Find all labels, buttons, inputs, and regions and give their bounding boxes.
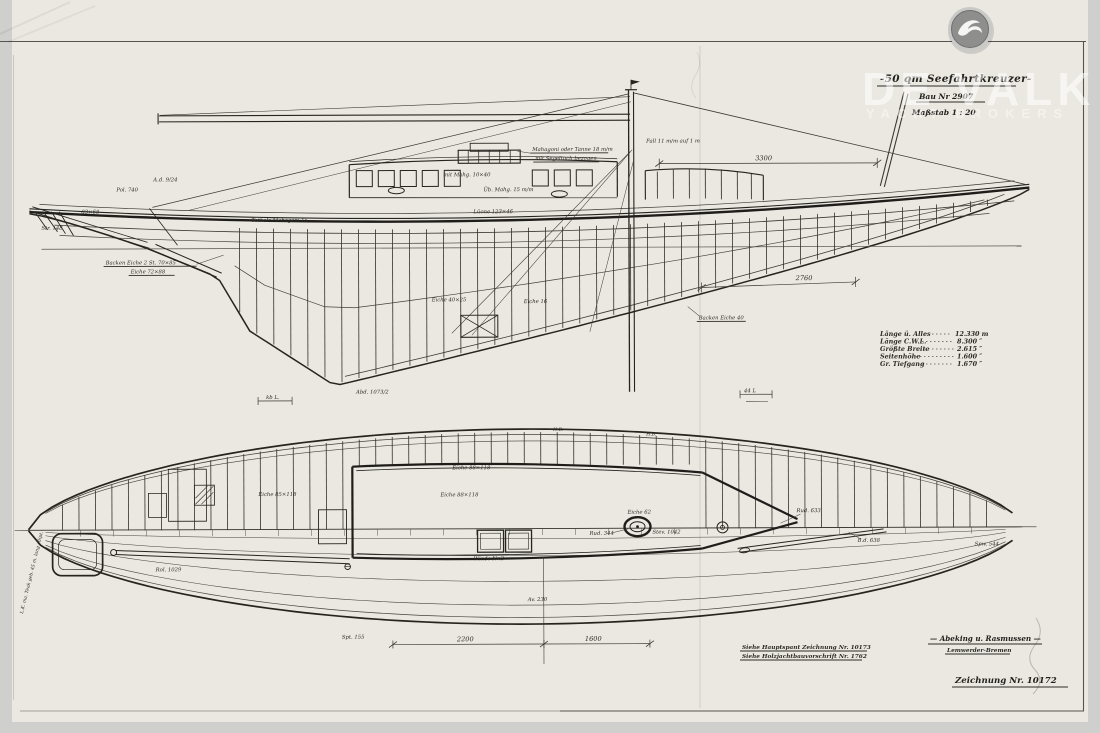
label-mahagoni-tanne-2: mit Segeltuch bezogen (535, 156, 597, 162)
label-hb-2: H.B. (645, 432, 657, 438)
scanned-yacht-blueprint: Pol. 740 A.d. 9/24 83×68 Str. 148 Backen… (0, 0, 1100, 733)
dimension-label-1600: 1600 (585, 635, 602, 643)
yard-city: Lemwerder-Bremen (946, 648, 1012, 654)
devalk-watermark: DE VALK YACHT BROKERS (862, 63, 1096, 121)
label-spt-155: Spt. 155 (342, 635, 365, 641)
dimension-label-3300: 3300 (755, 154, 772, 162)
label-eiche-85x118: Eiche 85×118 (257, 492, 297, 498)
label-eiche-16: Eiche 16 (523, 299, 548, 305)
label-totholz: Totholz Mahagoni 15 (251, 218, 308, 224)
reference-note-2: Siehe Holzjachtbauvorschrift Nr. 1762 (742, 654, 867, 660)
label-83x68: 83×68 (81, 210, 100, 216)
label-mit-mahg: mit Mahg. 10×40 (443, 172, 491, 178)
label-rud-344: Rud. 344 (589, 531, 614, 537)
drawing-number: Zeichnung Nr. 10172 (954, 676, 1057, 686)
label-abd-1073: Abd. 1073/2 (355, 390, 389, 396)
label-winde-nr2: Winde Nr.2 (474, 556, 505, 562)
label-eiche-88x118-a: Eiche 88×118 (451, 465, 491, 471)
label-eiche-62: Eiche 62 (626, 510, 651, 516)
label-kb-l: kb L. (266, 395, 280, 401)
label-str-148: Str. 148 (41, 226, 63, 232)
label-hb-1: H.B. (552, 427, 564, 433)
label-ub-mahg: Üb. Mahg. 15 m/m (483, 186, 533, 193)
label-spw-544: Spw. 544 (975, 541, 999, 547)
watermark-subtext: YACHT BROKERS (866, 106, 1069, 121)
label-pol-740: Pol. 740 (115, 187, 138, 193)
label-rud-633: Rud. 633 (795, 508, 821, 514)
label-eiche-40x25: Eiche 40×25 (431, 297, 467, 303)
yard-name: — Abeking u. Rasmussen — (930, 634, 1041, 643)
label-eiche-88x118-b: Eiche 88×118 (439, 492, 479, 498)
dimension-label-2760: 2760 (795, 274, 813, 282)
label-luone: Lüone 123×46 (472, 209, 513, 215)
dimension-label-2200: 2200 (456, 635, 474, 643)
reference-note-1: Siehe Hauptspant Zeichnung Nr. 10173 (742, 645, 871, 651)
label-eiche-72x88: Eiche 72×88 (130, 269, 166, 275)
label-44-l: 44 L (743, 388, 756, 394)
spec-value: 1.670 ″ (957, 360, 982, 368)
label-backen-eiche-40: Backen Eiche 40 (698, 315, 745, 321)
label-bd-638: B.d. 638 (857, 538, 881, 544)
label-fall: Fall 11 m/m auf 1 m (645, 138, 700, 144)
label-stev-1042: Stev. 1042 (653, 530, 682, 536)
label-av-230: Av. 230 (527, 597, 548, 603)
label-ad-9-24: A.d. 9/24 (152, 177, 177, 183)
label-rol-1029: Rol. 1029 (155, 567, 182, 573)
label-mahagoni-tanne-1: Mahagoni oder Tanne 18 m/m (531, 147, 613, 153)
label-backen-eiche: Backen Eiche 2 St. 70×85 (105, 260, 177, 266)
